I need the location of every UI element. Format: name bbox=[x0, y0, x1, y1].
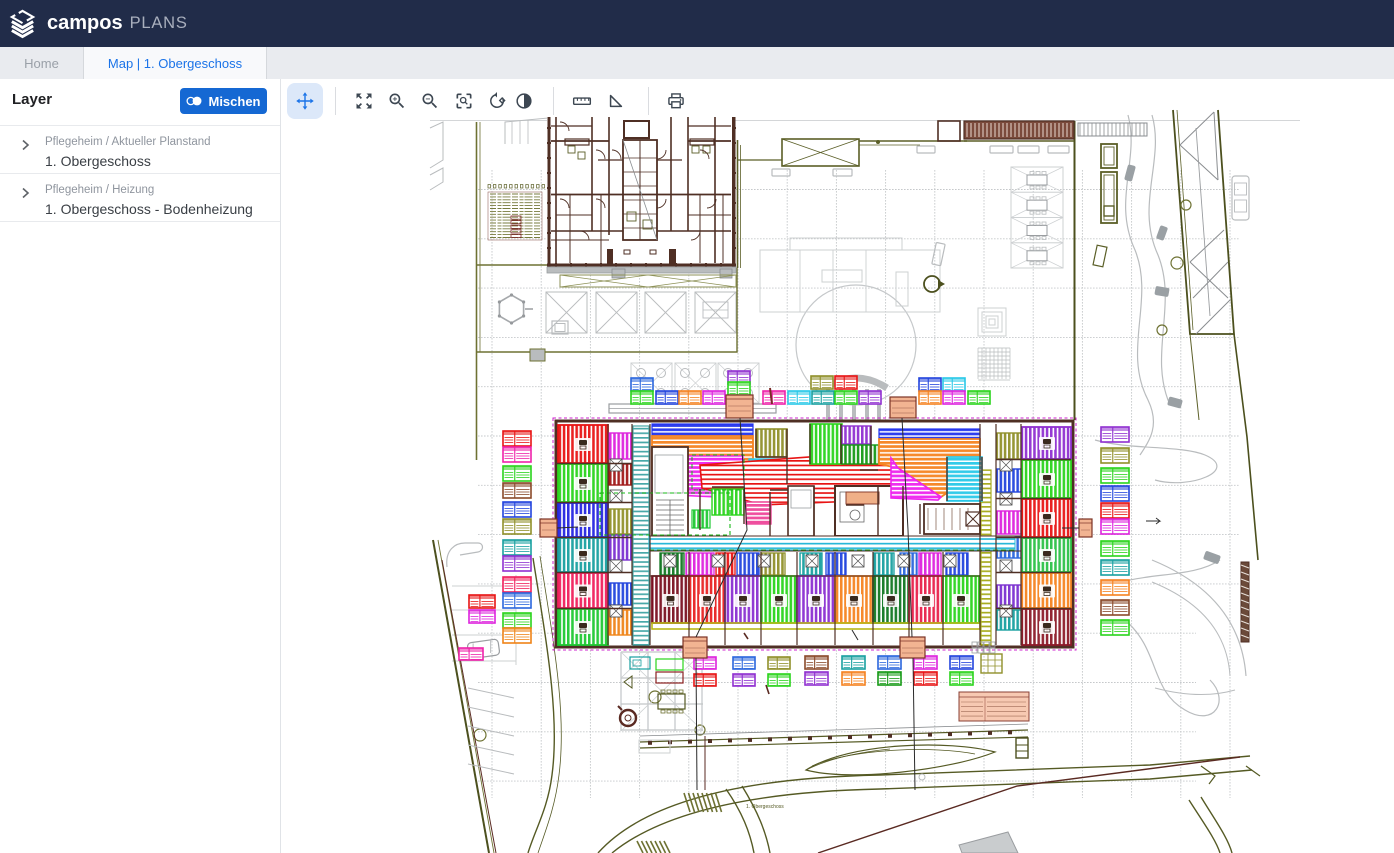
svg-text:1. Obergeschoss: 1. Obergeschoss bbox=[746, 804, 784, 810]
